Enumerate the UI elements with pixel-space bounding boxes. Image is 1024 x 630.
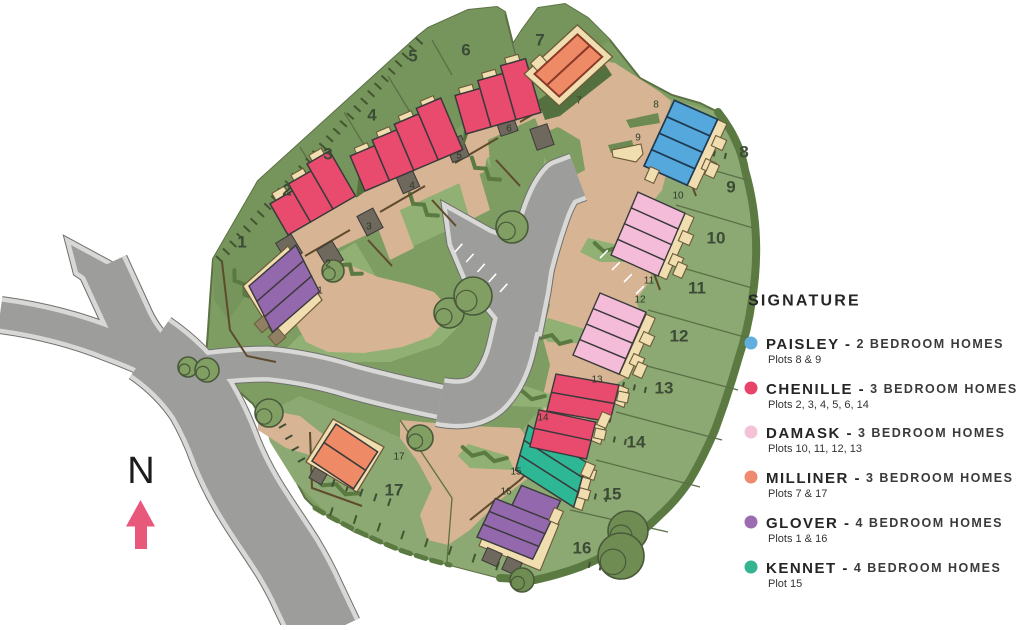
svg-text:14: 14 [627,433,646,452]
svg-text:4: 4 [409,181,415,192]
svg-text:Plots 2, 3, 4, 5, 6, 14: Plots 2, 3, 4, 5, 6, 14 [768,399,869,411]
svg-text:6: 6 [506,124,512,135]
svg-text:7: 7 [576,96,582,107]
svg-text:16: 16 [573,539,592,558]
svg-text:10: 10 [707,229,726,248]
svg-text:Plot 15: Plot 15 [768,578,802,590]
svg-text:8: 8 [653,100,659,111]
svg-text:2: 2 [325,259,331,270]
svg-text:9: 9 [635,133,641,144]
svg-text:13: 13 [591,375,603,386]
svg-text:14: 14 [537,413,549,424]
svg-text:9: 9 [726,178,735,197]
svg-text:2: 2 [282,181,291,200]
svg-text:10: 10 [672,191,684,202]
svg-text:12: 12 [634,295,646,306]
svg-text:8: 8 [739,143,748,162]
svg-text:SIGNATURE: SIGNATURE [748,293,861,310]
svg-text:KENNET - 4 BEDROOM HOMES: KENNET - 4 BEDROOM HOMES [766,560,1001,577]
svg-text:17: 17 [385,481,404,500]
svg-text:N: N [127,450,154,492]
svg-text:11: 11 [644,276,655,287]
svg-text:3: 3 [323,145,332,164]
svg-text:11: 11 [688,279,706,298]
svg-text:13: 13 [655,379,674,398]
svg-text:17: 17 [393,452,405,463]
svg-text:CHENILLE - 3 BEDROOM HOMES: CHENILLE - 3 BEDROOM HOMES [766,381,1018,398]
svg-text:1: 1 [317,286,323,297]
svg-text:Plots 7 & 17: Plots 7 & 17 [768,488,827,500]
svg-text:Plots 8 & 9: Plots 8 & 9 [768,354,821,366]
svg-text:Plots 10, 11, 12, 13: Plots 10, 11, 12, 13 [768,443,862,455]
svg-text:5: 5 [456,151,462,162]
svg-text:GLOVER - 4 BEDROOM HOMES: GLOVER - 4 BEDROOM HOMES [766,515,1003,532]
svg-text:6: 6 [461,41,470,60]
svg-text:3: 3 [366,222,372,233]
svg-text:4: 4 [367,106,377,125]
svg-text:1: 1 [237,233,246,252]
svg-text:7: 7 [535,31,544,50]
svg-text:DAMASK - 3 BEDROOM HOMES: DAMASK - 3 BEDROOM HOMES [766,425,1006,442]
svg-text:5: 5 [408,47,417,66]
svg-text:MILLINER - 3 BEDROOM HOMES: MILLINER - 3 BEDROOM HOMES [766,470,1014,487]
svg-text:Plots 1 & 16: Plots 1 & 16 [768,533,827,545]
svg-text:12: 12 [670,327,689,346]
svg-text:PAISLEY - 2 BEDROOM HOMES: PAISLEY - 2 BEDROOM HOMES [766,336,1004,353]
svg-text:15: 15 [603,485,622,504]
svg-text:16: 16 [500,487,512,498]
svg-text:15: 15 [510,467,522,478]
